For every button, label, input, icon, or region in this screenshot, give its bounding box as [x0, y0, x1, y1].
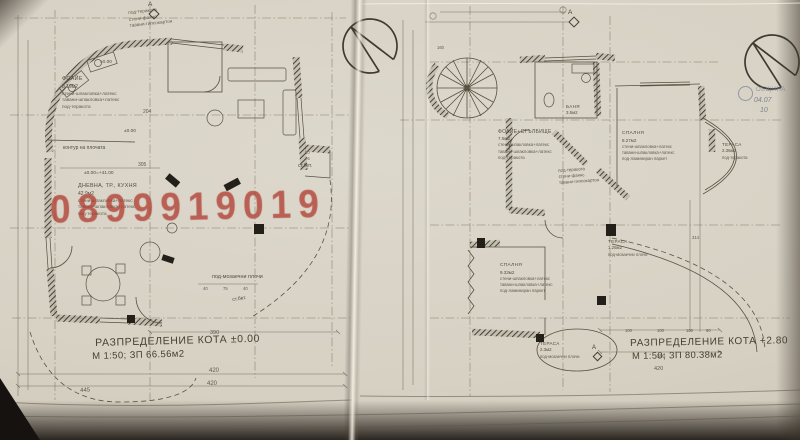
municipal-stamp: ОБЩИНА 04.07 10 — [736, 82, 798, 118]
dim-label: 76 — [305, 156, 310, 162]
dim-label: 314 — [692, 235, 699, 241]
right-plan-partitions — [468, 56, 737, 371]
right-wc-finish-block: под-теракота стени-фаянс тавани-гипсокар… — [558, 165, 599, 186]
dim-label: 420 — [654, 366, 663, 374]
stamp-emblem-icon — [738, 86, 753, 101]
section-marker-a: А — [592, 344, 601, 360]
right-plan-spiral-stair — [437, 58, 497, 118]
left-plan-subtitle: М 1:50; ЗП 66.56м2 — [92, 348, 185, 364]
section-marker-a: А — [568, 8, 578, 26]
room-label-hall: ФОАЙЕ+СТЪЛБИЩЕ 7.5м2 стени-шпакловка+лат… — [498, 129, 552, 161]
finish-line: под-ламиниран паркет — [622, 156, 675, 162]
paper-crease — [424, 0, 430, 400]
section-marker-a: А — [148, 0, 158, 18]
dim-label: 100 — [657, 328, 664, 334]
dim-label: 445 — [80, 386, 90, 395]
room-name: ФОАЙЕ+СТЪЛБИЩЕ — [498, 129, 552, 136]
room-area: 3.5м2 — [566, 110, 580, 116]
dim-label: 100 — [625, 328, 632, 334]
dim-label: 80 — [305, 150, 310, 156]
dim-label: 90 — [706, 328, 711, 334]
photographed-blueprint-sheet: под-теракота стени-фаянс тавани-гипсокар… — [0, 0, 800, 440]
dim-label: 100 — [686, 328, 693, 334]
level-mark: ±0.00 — [124, 129, 136, 136]
room-label-bedroom2: СПАЛНЯ 9.33м2 стени-шпакловка+латекс тав… — [500, 263, 553, 294]
room-label-terrace2: ТЕРАСА 1.25м2 под-мозаечни плочи — [608, 239, 647, 257]
dim-label: 204 — [143, 109, 151, 116]
section-marker-diamond-icon — [568, 16, 579, 27]
right-plan-dim-lines — [403, 7, 722, 390]
room-label-terrace1: ТЕРАСА 2.36м2 под-теракота — [722, 142, 748, 160]
room-label-bedroom1: СПАЛНЯ 8.27м2 стени-шпакловка+латекс тав… — [622, 131, 675, 162]
stamp-text: ОБЩИНА — [756, 87, 786, 93]
watermark-phone-number: 0899919019 — [50, 182, 327, 232]
dim-label: 40 — [203, 286, 208, 292]
dim-label: 420 — [209, 367, 219, 375]
right-plan-subtitle: М 1:50; ЗП 80.38м2 — [632, 348, 723, 363]
right-plan-bath-fixtures — [544, 64, 594, 107]
stamp-handwritten-date: 04.07 — [754, 97, 772, 104]
section-marker-diamond-icon — [593, 352, 603, 362]
finish-line: под-ламиниран паркет — [500, 288, 553, 294]
finish-line: под-теракота — [722, 155, 748, 161]
section-marker-diamond-icon — [148, 8, 159, 19]
dim-label: 160 — [437, 45, 444, 51]
finish-line: стени-шпакловка+латекс — [62, 91, 119, 98]
room-name: ФОАЙЕ — [62, 76, 119, 84]
finish-line: под-мозаечни плочи — [608, 252, 647, 258]
slab-contour-note: контур на плочата — [63, 145, 105, 152]
concrete-note: ст.бет. — [298, 163, 312, 170]
room-name: СПАЛНЯ — [622, 131, 675, 138]
mosaic-floor-note: под-мозаечни плочи — [212, 274, 263, 282]
room-label-bath: БАНЯ 3.5м2 — [566, 104, 580, 117]
dim-label: 305 — [138, 162, 146, 169]
room-name: СПАЛНЯ — [500, 263, 553, 270]
level-mark: ±0.00 — [100, 60, 112, 67]
finish-line: тавани-шпакловка+латекс — [62, 97, 119, 104]
dim-label: 420 — [207, 380, 217, 388]
dim-label: 75 — [223, 286, 228, 292]
finish-line: под-теракота — [498, 155, 552, 161]
section-marker-letter: А — [148, 1, 152, 8]
section-marker-letter: А — [592, 345, 596, 351]
room-label-foyer: ФОАЙЕ 8.19м2 стени-шпакловка+латекс тава… — [62, 76, 119, 110]
north-arrow-icon — [745, 35, 799, 89]
room-area: 8.19м2 — [62, 84, 119, 91]
room-label-terrace3: ТЕРАСА 2.3м2 под-мозаечни плочи — [540, 341, 579, 359]
section-marker-letter: А — [568, 9, 572, 16]
finish-line: под-мозаечни плочи — [540, 354, 579, 360]
dim-label: 40 — [243, 286, 248, 292]
stamp-handwritten-number: 10 — [760, 107, 768, 114]
finish-line: под-теракота — [62, 104, 119, 111]
level-equals-note: ±0.00=+41.00 — [84, 171, 114, 178]
